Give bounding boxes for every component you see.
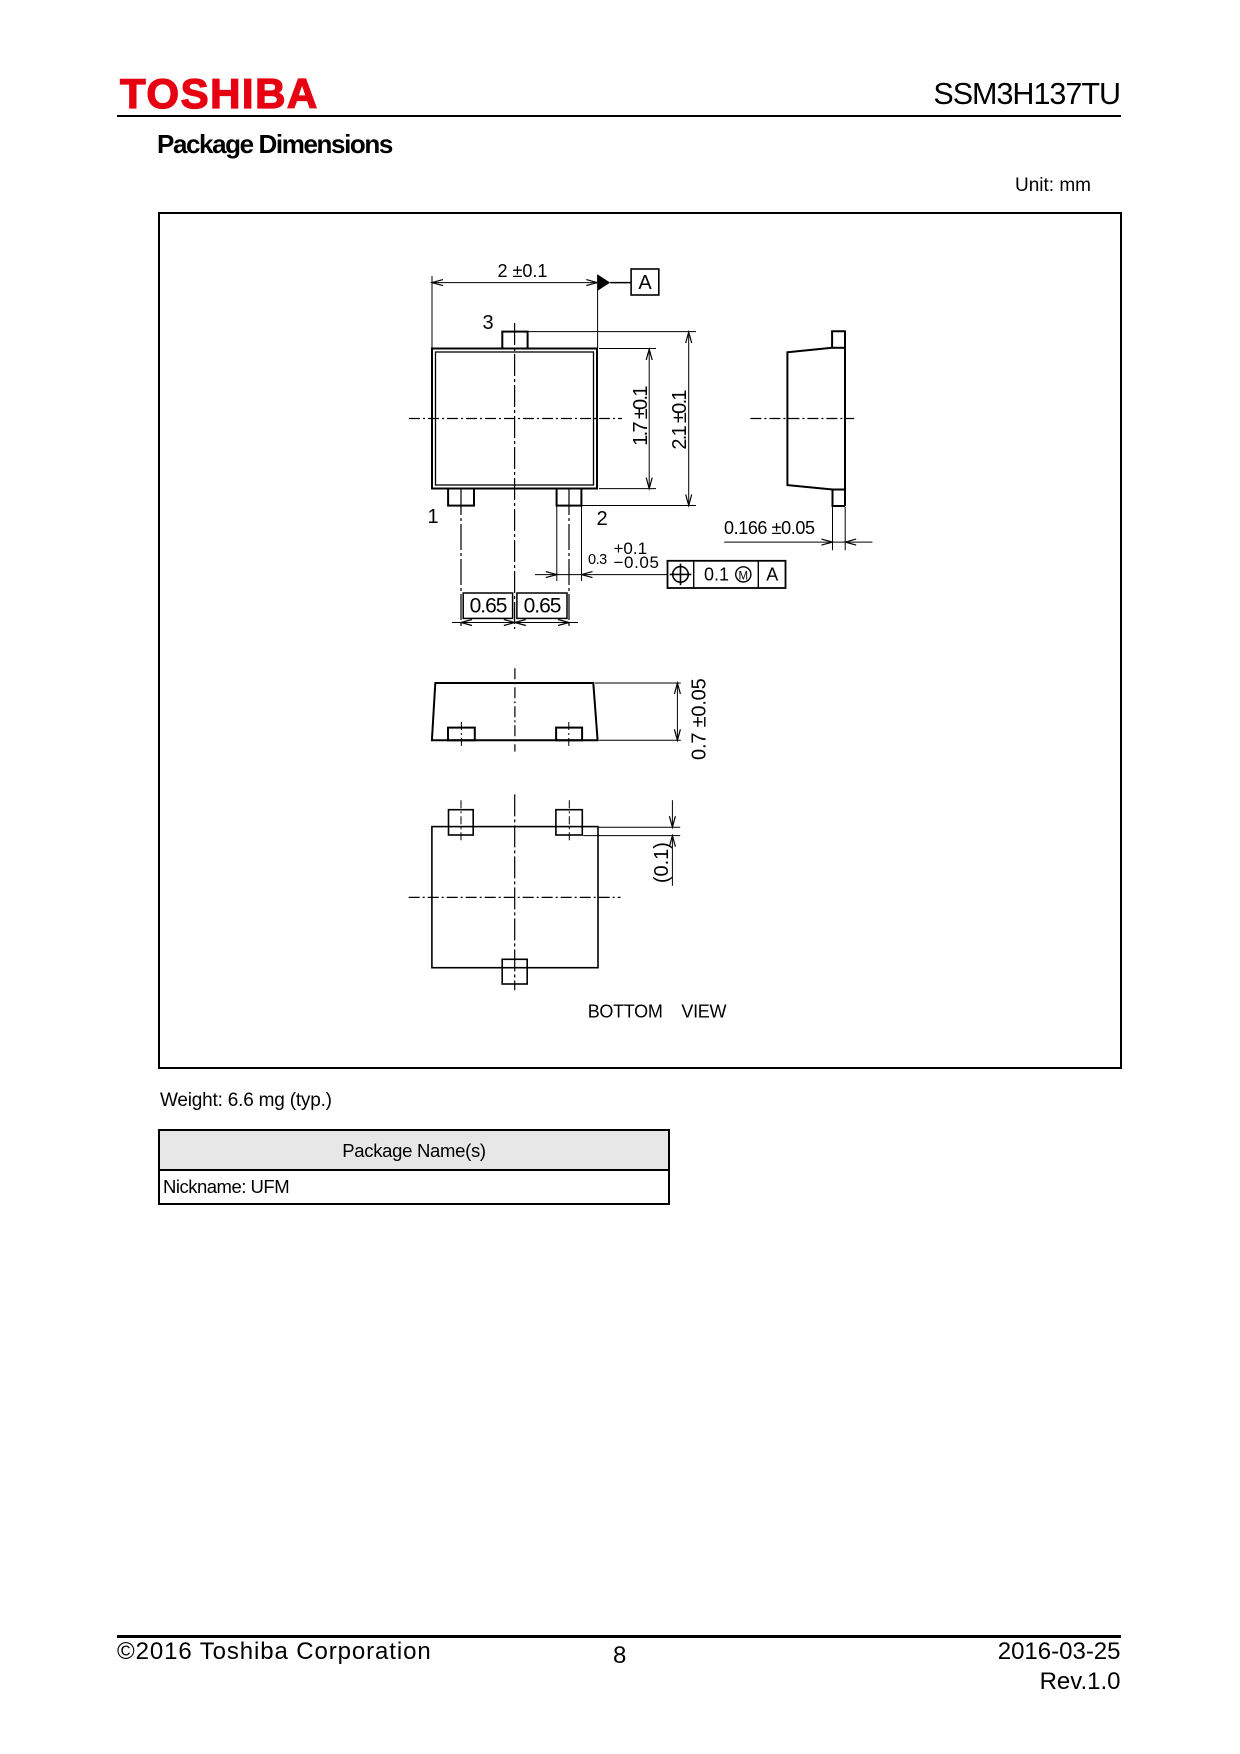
svg-text:0.166 ±0.05: 0.166 ±0.05 [724,518,815,538]
svg-text:(0.1): (0.1) [651,842,673,883]
svg-text:3: 3 [482,312,493,334]
svg-text:1.7 ±0.1: 1.7 ±0.1 [630,386,652,446]
svg-text:0.7 ±0.05: 0.7 ±0.05 [688,678,710,760]
svg-text:1: 1 [427,506,438,528]
svg-text:M: M [739,571,749,583]
svg-text:A: A [766,565,778,585]
svg-text:0.3: 0.3 [588,552,607,568]
svg-text:0.1: 0.1 [704,565,729,585]
svg-text:A: A [638,272,652,294]
svg-text:0.65: 0.65 [470,595,507,618]
svg-text:0.65: 0.65 [524,595,561,618]
svg-text:2: 2 [596,508,607,530]
svg-text:2.1 ±0.1: 2.1 ±0.1 [669,390,691,450]
svg-text:−0.05: −0.05 [614,553,660,572]
svg-text:BOTTOM VIEW: BOTTOM VIEW [588,1002,727,1022]
svg-text:2 ±0.1: 2 ±0.1 [498,261,548,281]
